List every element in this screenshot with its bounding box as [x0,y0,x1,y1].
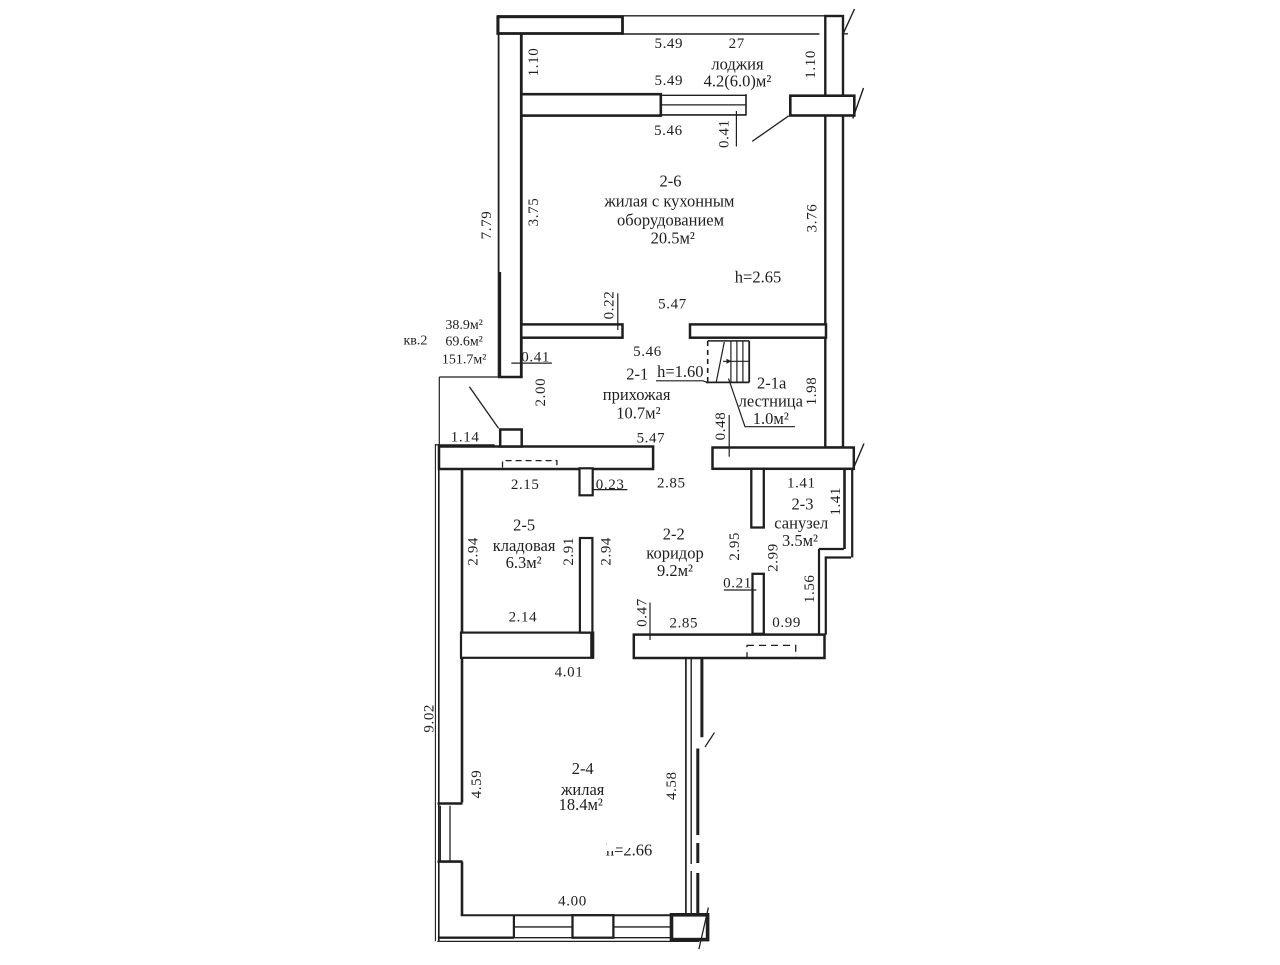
svg-text:2.85: 2.85 [657,476,686,492]
svg-text:1.10: 1.10 [526,48,542,77]
svg-text:2-1a: 2-1a [757,373,787,392]
svg-text:5.49: 5.49 [654,36,683,52]
svg-text:5.47: 5.47 [658,296,687,312]
svg-text:h=2.65: h=2.65 [735,267,781,286]
svg-text:151.7м²: 151.7м² [442,353,487,368]
svg-text:3.75: 3.75 [526,198,542,227]
svg-text:h=1.60: h=1.60 [657,362,703,381]
svg-text:4.59: 4.59 [469,770,485,799]
svg-text:оборудованием: оборудованием [617,210,725,229]
svg-text:5.46: 5.46 [654,123,683,139]
svg-text:2.99: 2.99 [766,543,782,572]
svg-text:0.47: 0.47 [634,598,650,627]
svg-text:2.00: 2.00 [533,378,549,407]
svg-text:1.98: 1.98 [804,377,820,406]
svg-text:1.10: 1.10 [803,50,819,79]
svg-text:2-6: 2-6 [660,172,682,191]
svg-text:2.85: 2.85 [669,616,698,632]
svg-text:69.6м²: 69.6м² [445,335,483,350]
svg-text:0.41: 0.41 [717,119,733,148]
svg-text:5.47: 5.47 [637,431,666,447]
svg-text:1.0м²: 1.0м² [753,409,789,428]
svg-text:0.22: 0.22 [601,291,617,320]
svg-text:4.2(6.0)м²: 4.2(6.0)м² [704,71,772,90]
svg-text:2.95: 2.95 [727,532,743,561]
svg-text:1.41: 1.41 [828,487,844,516]
svg-text:9.02: 9.02 [421,704,437,733]
svg-text:0.23: 0.23 [596,477,625,493]
svg-text:1.41: 1.41 [787,476,816,492]
svg-text:0.48: 0.48 [713,412,729,441]
svg-text:2-4: 2-4 [572,759,594,778]
svg-text:1.14: 1.14 [451,429,480,445]
svg-text:4.01: 4.01 [555,665,584,681]
svg-text:2.94: 2.94 [599,537,615,566]
svg-text:2-5: 2-5 [513,516,535,535]
svg-text:0.21: 0.21 [723,576,752,592]
svg-text:4.00: 4.00 [558,893,587,909]
svg-text:5.49: 5.49 [654,73,683,89]
svg-text:38.9м²: 38.9м² [445,318,483,333]
svg-text:0.99: 0.99 [772,615,801,631]
svg-text:9.2м²: 9.2м² [657,561,693,580]
svg-text:2.14: 2.14 [509,610,538,626]
svg-text:6.3м²: 6.3м² [506,553,542,572]
svg-text:4.58: 4.58 [664,771,680,800]
svg-text:2-3: 2-3 [792,495,814,514]
svg-text:2-2: 2-2 [663,525,685,544]
svg-text:кв.2: кв.2 [403,334,427,349]
svg-text:3.76: 3.76 [805,204,821,233]
svg-text:2.15: 2.15 [511,477,540,493]
svg-text:2.94: 2.94 [466,537,482,566]
svg-text:0.41: 0.41 [521,349,550,365]
svg-text:27: 27 [729,36,745,52]
svg-text:2.91: 2.91 [561,537,577,566]
svg-text:коридор: коридор [646,543,703,562]
svg-text:20.5м²: 20.5м² [651,229,695,248]
svg-text:жилая с кухонным: жилая с кухонным [603,191,735,210]
svg-text:3.5м²: 3.5м² [782,531,818,550]
svg-text:5.46: 5.46 [633,344,662,360]
svg-text:1.56: 1.56 [802,574,818,603]
svg-text:2-1: 2-1 [626,365,648,384]
svg-text:10.7м²: 10.7м² [616,403,660,422]
svg-text:7.79: 7.79 [479,211,495,240]
svg-text:прихожая: прихожая [603,385,671,404]
svg-text:санузел: санузел [774,513,828,532]
svg-text:лестница: лестница [739,392,804,411]
svg-text:18.4м²: 18.4м² [559,795,603,814]
